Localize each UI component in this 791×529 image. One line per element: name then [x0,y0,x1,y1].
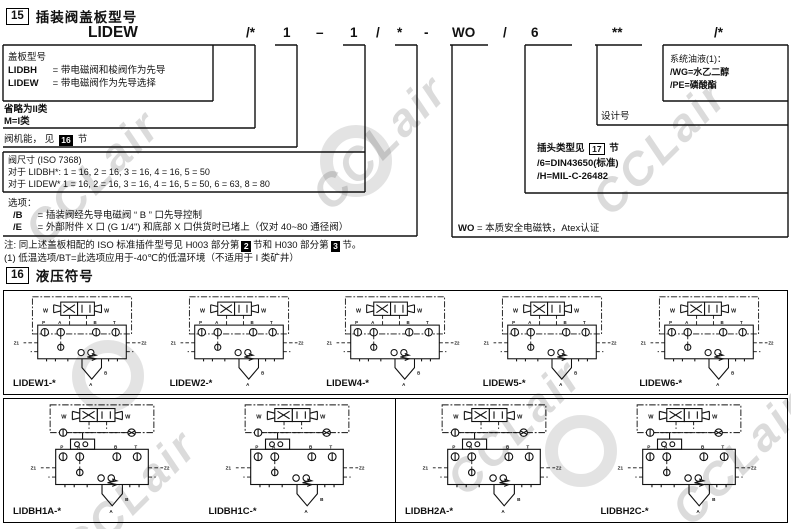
plug-type-line: 插头类型见 17 节 [537,143,619,155]
hydraulic-symbols-row-lidew: LIDEW1-* LIDEW2-* LIDEW4-* LIDEW5-* LIDE… [3,290,788,395]
section-15-number: 15 [6,8,29,25]
section-3-ref-badge: 3 [331,241,341,252]
symbol-cell: LIDEW1-* [4,291,161,394]
code-token-slash: / [376,25,380,40]
symbol-cell: LIDEW5-* [474,291,631,394]
valve-function-line: 阀机能， 见 16 节 [4,134,87,146]
valve-function-text: 阀机能， 见 [4,134,54,145]
symbol-label: LIDEW4-* [326,378,369,389]
section-16-ref-badge: 16 [59,135,73,146]
hydraulic-symbols-row-lidbh: LIDBH1A-* LIDBH1C-* LIDBH2A-* LIDBH2C-* [3,398,788,523]
datasheet-page: CCLair CCLair CCLair CCLair CCLair CCLai… [0,0,791,529]
code-token-func: 1 [283,25,291,40]
symbol-cell: LIDBH1C-* [200,399,396,522]
code-token-plug: 6 [531,25,539,40]
option-key: /E [13,222,35,234]
valve-size-title: 阀尺寸 (ISO 7368) [8,155,82,167]
section-16-header: 16 液压符号 [6,265,94,285]
hydraulic-symbol-lidew4 [324,295,466,388]
options-title: 选项： [8,198,37,210]
symbol-label: LIDEW2-* [170,378,213,389]
symbol-cell: LIDEW4-* [317,291,474,394]
fluid-option-pe: /PE=磷酸酯 [670,80,717,92]
symbol-cell: LIDBH2C-* [592,399,788,522]
code-token-size: 1 [350,25,358,40]
code-token-slash2: / [503,25,507,40]
valve-size-row-lidew: 对于 LIDEW* 1 = 16, 2 = 16, 3 = 16, 4 = 16… [8,179,270,191]
cover-model-value: = 带电磁阀和梭阀作为先导 [53,65,166,76]
valve-size-row-lidbh: 对于 LIDBH*: 1 = 16, 2 = 16, 3 = 16, 4 = 1… [8,167,210,179]
symbol-cell: LIDBH2A-* [396,399,592,522]
code-token-wo: WO [452,25,475,40]
hydraulic-symbol-lidbh1c [222,403,372,516]
note-low-temp: (1) 低温选项/BT=此选项应用于-40℃的低温环境（不适用于 I 类矿井） [4,253,299,265]
code-token-hyphen: - [424,25,429,40]
fluid-title: 系统油液(1)： [670,54,726,66]
section-15-header: 15 插装阀盖板型号 [6,6,137,26]
section-17-ref-badge: 17 [589,143,604,155]
cover-model-key: LIDBH [8,65,50,77]
cover-model-value: = 带电磁阀作为先导选择 [53,78,156,89]
options-row: /E = 外部附件 X 口 (G 1/4") 和底部 X 口供货时已堵上（仅对 … [13,222,348,234]
option-value: = 插装阀经先导电磁阀 “ B ” 口先导控制 [38,210,202,221]
code-token-fluid: /* [714,25,723,40]
valve-function-text-post: 节 [78,134,88,145]
note-text: 注: 同上述盖板相配的 ISO 标准插件型号见 H003 部分第 [4,240,239,251]
note-text: 节和 H030 部分第 [253,240,329,251]
symbol-label: LIDBH2A-* [405,506,453,517]
options-row: /B = 插装阀经先导电磁阀 “ B ” 口先导控制 [13,210,202,222]
plug-type-text-post: 节 [609,143,619,154]
section-16-number: 16 [6,267,29,284]
hydraulic-symbol-lidew2 [168,295,310,388]
section-2-ref-badge: 2 [241,241,251,252]
symbol-label: LIDBH1C-* [209,506,257,517]
symbol-label: LIDBH2C-* [601,506,649,517]
note-iso-plugin: 注: 同上述盖板相配的 ISO 标准插件型号见 H003 部分第2节和 H030… [4,240,361,252]
symbol-label: LIDBH1A-* [13,506,61,517]
plug-option-din: /6=DIN43650(标准) [537,158,619,170]
hydraulic-symbol-lidew5 [481,295,623,388]
symbol-cell: LIDEW2-* [161,291,318,394]
option-value: = 外部附件 X 口 (G 1/4") 和底部 X 口供货时已堵上（仅对 40~… [38,222,349,233]
symbol-label: LIDEW1-* [13,378,56,389]
hydraulic-symbol-lidew1 [11,295,153,388]
note-text: 节。 [342,240,361,251]
code-token-model: LIDEW [88,24,138,42]
symbol-cell: LIDBH1A-* [4,399,200,522]
plug-option-mil: /H=MIL-C-26482 [537,171,608,183]
lidbh2-group: LIDBH2A-* LIDBH2C-* [396,399,787,522]
cover-model-key: LIDEW [8,78,50,90]
hydraulic-symbol-lidbh2a [419,403,569,516]
code-token-class: /* [246,25,255,40]
cover-model-row: LIDEW = 带电磁阀作为先导选择 [8,78,156,90]
code-token-dash: – [316,25,324,40]
design-number-label: 设计号 [601,111,630,123]
symbol-label: LIDEW6-* [639,378,682,389]
code-token-design: ** [612,25,623,40]
fluid-option-wg: /WG=水乙二醇 [670,67,729,79]
section-16-title: 液压符号 [36,265,94,285]
plug-type-text: 插头类型见 [537,143,585,154]
cover-model-title: 盖板型号 [8,52,46,64]
wo-key: WO [458,223,474,234]
hydraulic-symbol-lidbh1a [27,403,177,516]
lidbh1-group: LIDBH1A-* LIDBH1C-* [4,399,396,522]
section-15-title: 插装阀盖板型号 [36,6,138,26]
class-line-2: M=I类 [4,116,30,128]
option-key: /B [13,210,35,222]
cover-model-row: LIDBH = 带电磁阀和梭阀作为先导 [8,65,165,77]
wo-value: = 本质安全电磁铁，Atex认证 [477,223,599,234]
class-line-1: 省略为II类 [4,104,47,116]
hydraulic-symbol-lidew6 [638,295,780,388]
wo-description: WO = 本质安全电磁铁，Atex认证 [458,223,599,235]
hydraulic-symbol-lidbh2c [614,403,764,516]
code-token-option: * [397,25,402,40]
symbol-label: LIDEW5-* [483,378,526,389]
symbol-cell: LIDEW6-* [630,291,787,394]
